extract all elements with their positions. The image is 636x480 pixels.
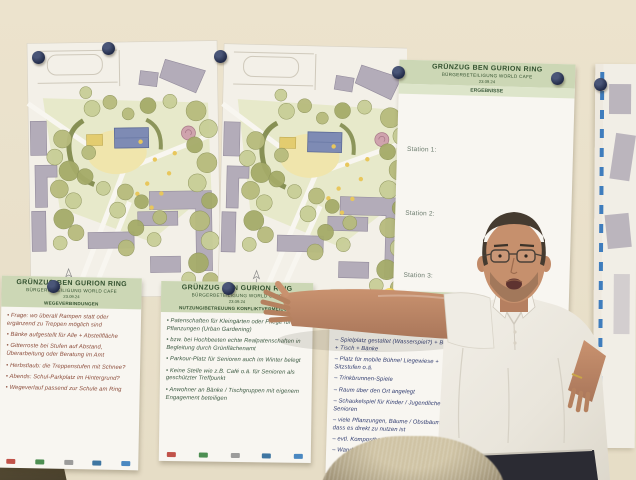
logo-red (6, 459, 15, 464)
flipchart-wegeverbindungen: GRÜNZUG BEN GURION RING BÜRGERBETEILIGUN… (0, 276, 142, 471)
navy-pin-icon (214, 50, 227, 63)
navy-pin-icon (392, 66, 405, 79)
note-line: • Gitterroste bei Stufen auf Abstand, Üb… (6, 343, 134, 361)
logo-gray (230, 453, 239, 458)
logo-red (167, 452, 176, 457)
map-building (609, 133, 636, 181)
station-label-1: Station 1: (407, 146, 437, 154)
logo-green (199, 452, 208, 457)
handwritten-notes: • Frage: wo überall Rampen statt oder er… (0, 307, 141, 396)
logo-blue (92, 460, 101, 465)
note-line: • Wegeverlauf passend zur Schule am Ring (6, 385, 134, 395)
note-line: • Bänke aufgestellt für Alle + Abstellfl… (7, 332, 135, 342)
navy-pin-icon (32, 51, 45, 64)
navy-pin-icon (551, 72, 564, 85)
map-building (609, 84, 631, 114)
site-plan-left (27, 41, 221, 299)
logo-blue-2 (121, 461, 130, 466)
navy-pin-icon (47, 280, 60, 293)
flipchart-header: GRÜNZUG BEN GURION RING BÜRGERBETEILIGUN… (1, 276, 142, 310)
navy-pin-icon (594, 78, 607, 91)
logo-green (35, 459, 44, 464)
navy-pin-icon (222, 282, 235, 295)
note-line: • Frage: wo überall Rampen statt oder er… (7, 313, 135, 331)
navy-pin-icon (102, 42, 115, 55)
photo-scene: GRÜNZUG BEN GURION RING BÜRGERBETEILIGUN… (0, 0, 636, 480)
footer-logos (6, 459, 130, 466)
logo-gray (64, 460, 73, 465)
note-line: • Abends: Schul-Parkplatz im Hintergrund… (6, 374, 134, 384)
note-line: • Herbstlaub: die Treppenstufen mit Schn… (6, 362, 134, 372)
